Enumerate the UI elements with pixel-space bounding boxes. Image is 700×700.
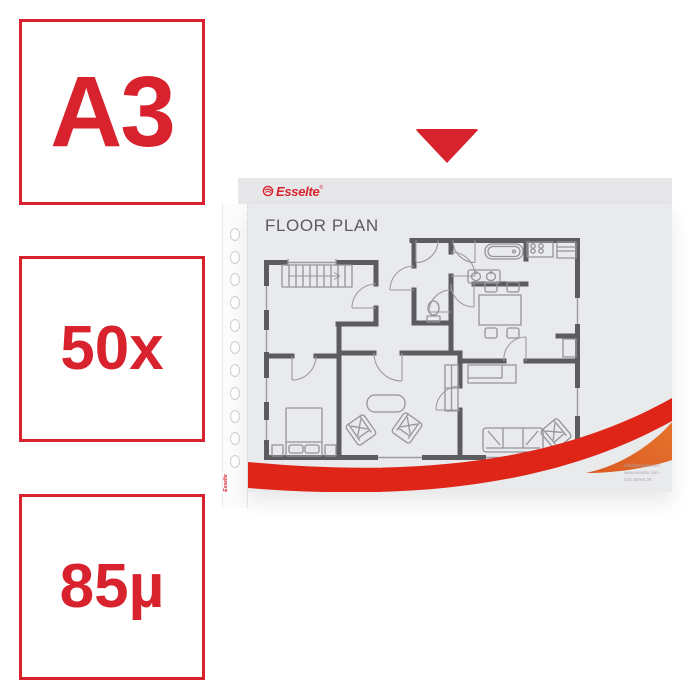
punch-hole (230, 455, 240, 468)
down-arrow-icon (415, 129, 479, 163)
punch-hole (230, 432, 240, 445)
punch-hole (230, 251, 240, 264)
format-badge-label: A3 (50, 62, 174, 162)
punch-hole (230, 273, 240, 286)
edge-vertical-label: Esselte (223, 474, 229, 492)
contact-line: info@esselte.com (624, 462, 660, 469)
esselte-swirl-icon (262, 185, 274, 197)
punch-hole (230, 319, 240, 332)
esselte-logo: Esselte ® (262, 184, 323, 199)
inserted-document: FLOOR PLAN (248, 204, 672, 492)
punch-hole (230, 296, 240, 309)
bathtub (485, 244, 523, 259)
quantity-badge: 50x (19, 256, 205, 442)
fridge-counter (557, 242, 576, 258)
format-badge: A3 (19, 19, 205, 205)
contact-line: City Street 29 (624, 476, 660, 483)
dining-table (479, 282, 521, 338)
punch-hole (230, 364, 240, 377)
punch-strip: Esselte (222, 204, 248, 508)
swoosh-graphic (248, 372, 672, 492)
punch-hole (230, 410, 240, 423)
pocket-flap: Esselte ® (238, 178, 672, 204)
staircase (282, 265, 352, 287)
appliance (563, 339, 576, 357)
punch-hole (230, 228, 240, 241)
document-title: FLOOR PLAN (265, 216, 379, 236)
swoosh-red-band (248, 398, 672, 492)
contact-block: info@esselte.com www.esselte.com City St… (624, 462, 660, 483)
punch-hole (230, 387, 240, 400)
contact-line: www.esselte.com (624, 469, 660, 476)
punch-hole (230, 341, 240, 354)
quantity-badge-label: 50x (60, 318, 163, 380)
brand-text: Esselte (276, 184, 319, 199)
registered-mark: ® (319, 185, 323, 191)
thickness-badge: 85µ (19, 494, 205, 680)
thickness-badge-label: 85µ (60, 556, 165, 618)
product-image: A3 50x 85µ Esselte ® Esselte (0, 0, 700, 700)
stove (527, 242, 553, 257)
